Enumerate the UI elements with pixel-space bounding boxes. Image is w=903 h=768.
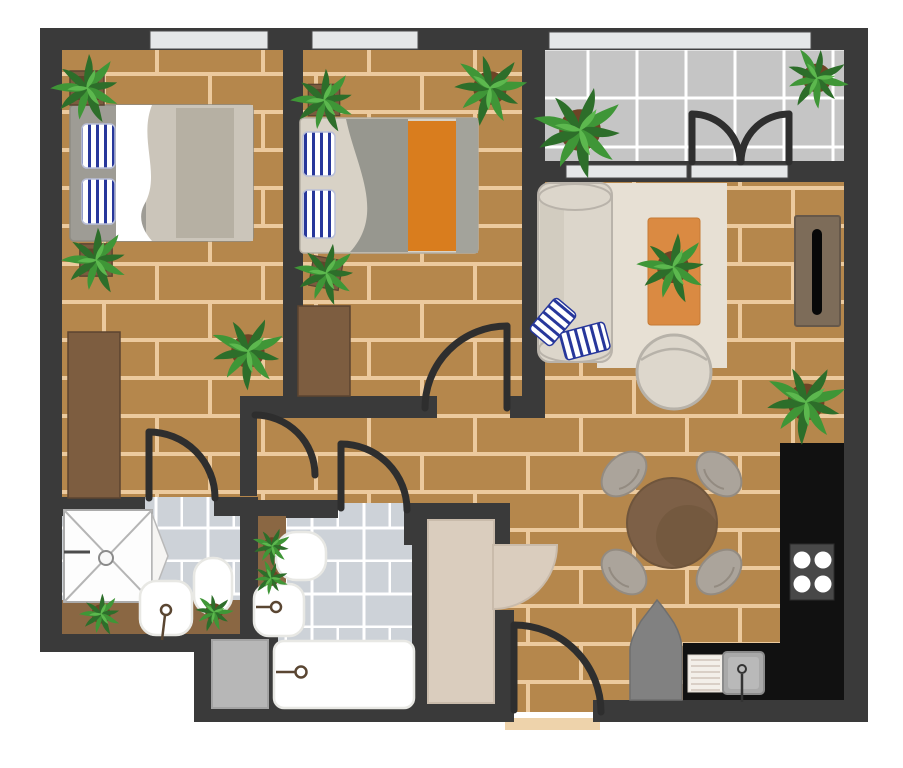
pillow (82, 124, 115, 168)
tv-console (795, 216, 840, 326)
faucet (296, 667, 307, 678)
dresser (298, 306, 350, 396)
bed-footer (456, 118, 478, 253)
faucet (271, 602, 281, 612)
balcony-door-threshold (691, 165, 788, 178)
sofa (529, 183, 612, 362)
blanket-fold (176, 108, 234, 238)
orange-runner (408, 121, 458, 251)
entry-threshold (505, 718, 600, 730)
bedroom2-window (312, 31, 418, 49)
bedroom1-window (150, 31, 268, 49)
shower-drain (99, 551, 113, 565)
washing-machine (212, 640, 268, 708)
tv (812, 229, 822, 315)
balcony-window (549, 32, 811, 49)
double-bed-2 (300, 118, 478, 253)
pillow (303, 190, 335, 238)
floor-plan (0, 0, 903, 768)
papasan-chair (637, 335, 711, 409)
pillow (303, 132, 335, 176)
floor-plan-canvas (0, 0, 903, 768)
entry-closet (428, 520, 494, 703)
stove (790, 544, 834, 600)
outside-area (0, 652, 196, 768)
wardrobe (68, 332, 120, 498)
double-bed-1 (70, 105, 253, 241)
faucet (161, 605, 171, 615)
pillow (82, 179, 115, 224)
